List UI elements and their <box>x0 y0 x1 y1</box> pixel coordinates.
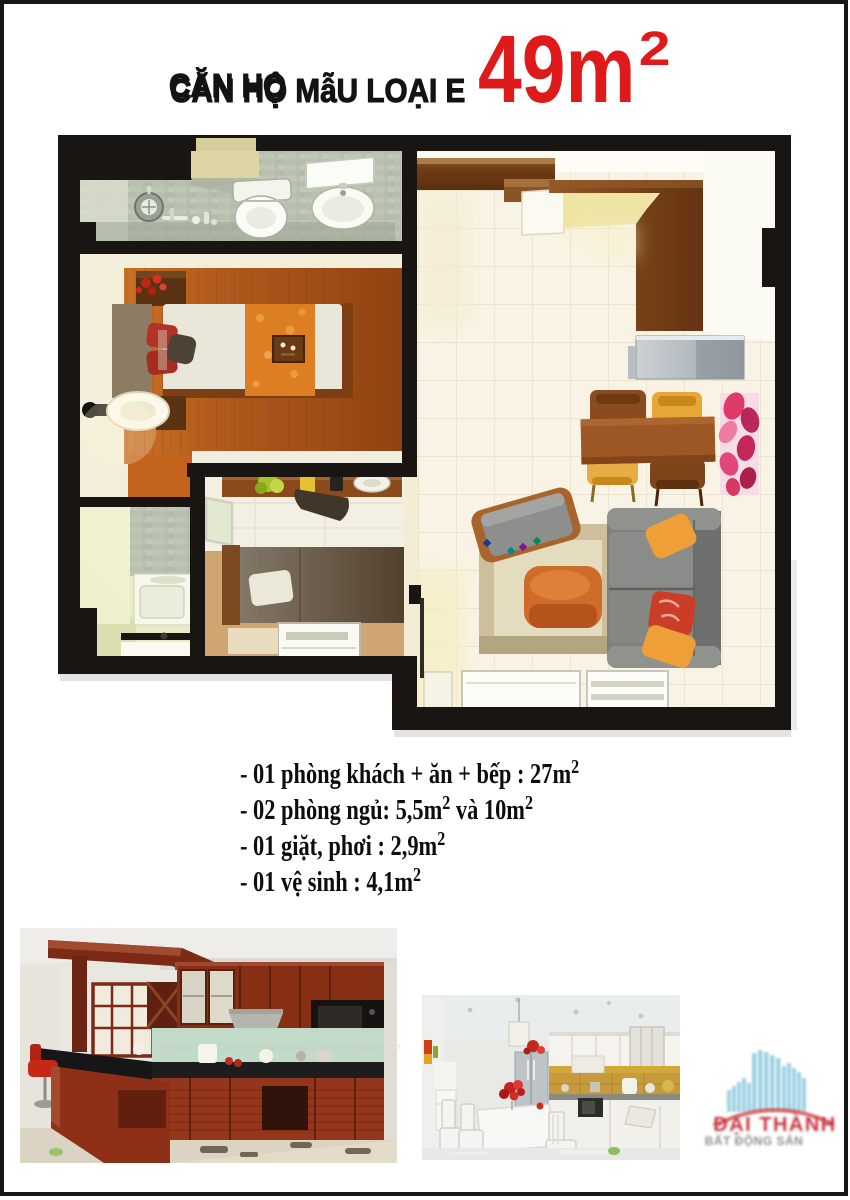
svg-text:BẤT ĐỘNG SẢN: BẤT ĐỘNG SẢN <box>705 1133 804 1148</box>
svg-text:ĐẠI THÀNH: ĐẠI THÀNH <box>713 1113 837 1136</box>
